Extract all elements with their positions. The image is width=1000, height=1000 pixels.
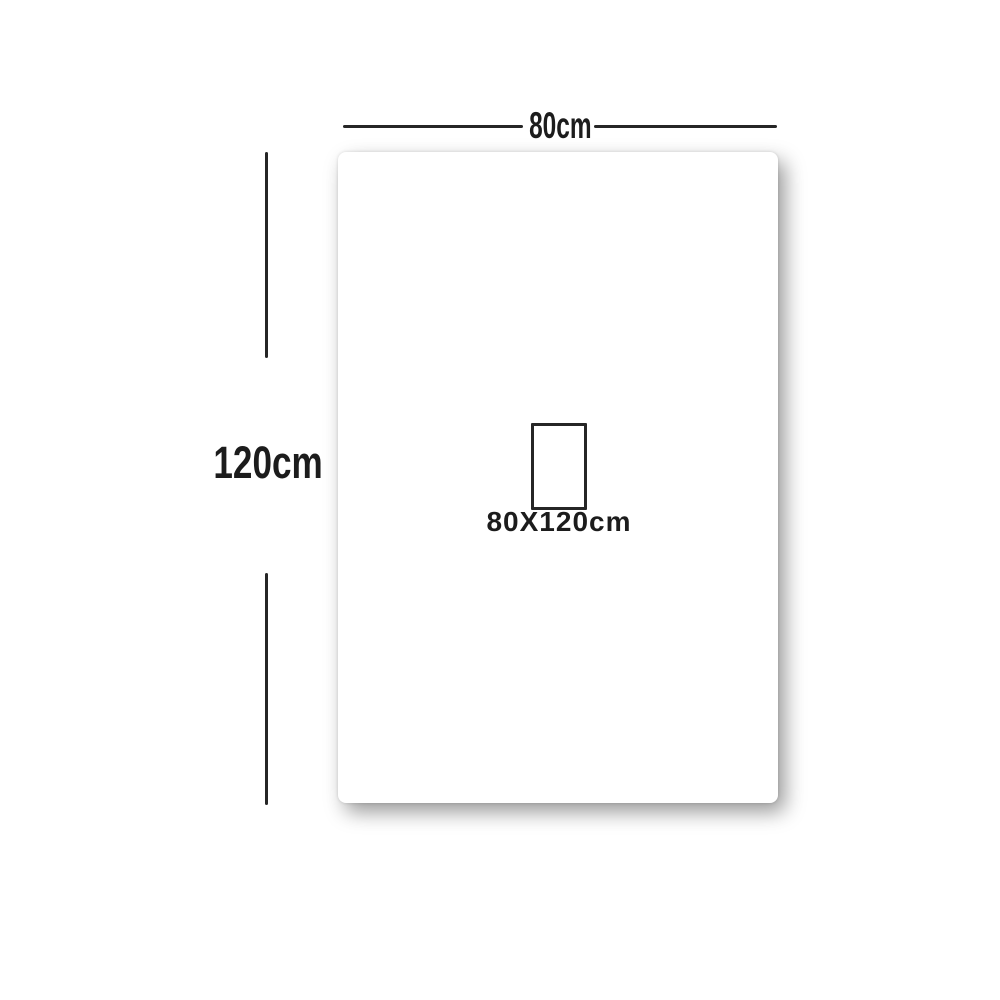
dimension-diagram: 80cm 120cm 80X120cm	[0, 0, 1000, 1000]
size-indicator-rectangle	[531, 423, 587, 510]
height-dimension-line-bottom	[265, 573, 268, 805]
height-dimension-label: 120cm	[188, 440, 348, 485]
height-dimension-text: 120cm	[213, 440, 322, 485]
size-indicator-label: 80X120cm	[459, 507, 659, 537]
width-dimension-text: 80cm	[529, 107, 591, 145]
width-dimension-line-right	[594, 125, 777, 128]
height-dimension-line-top	[265, 152, 268, 358]
